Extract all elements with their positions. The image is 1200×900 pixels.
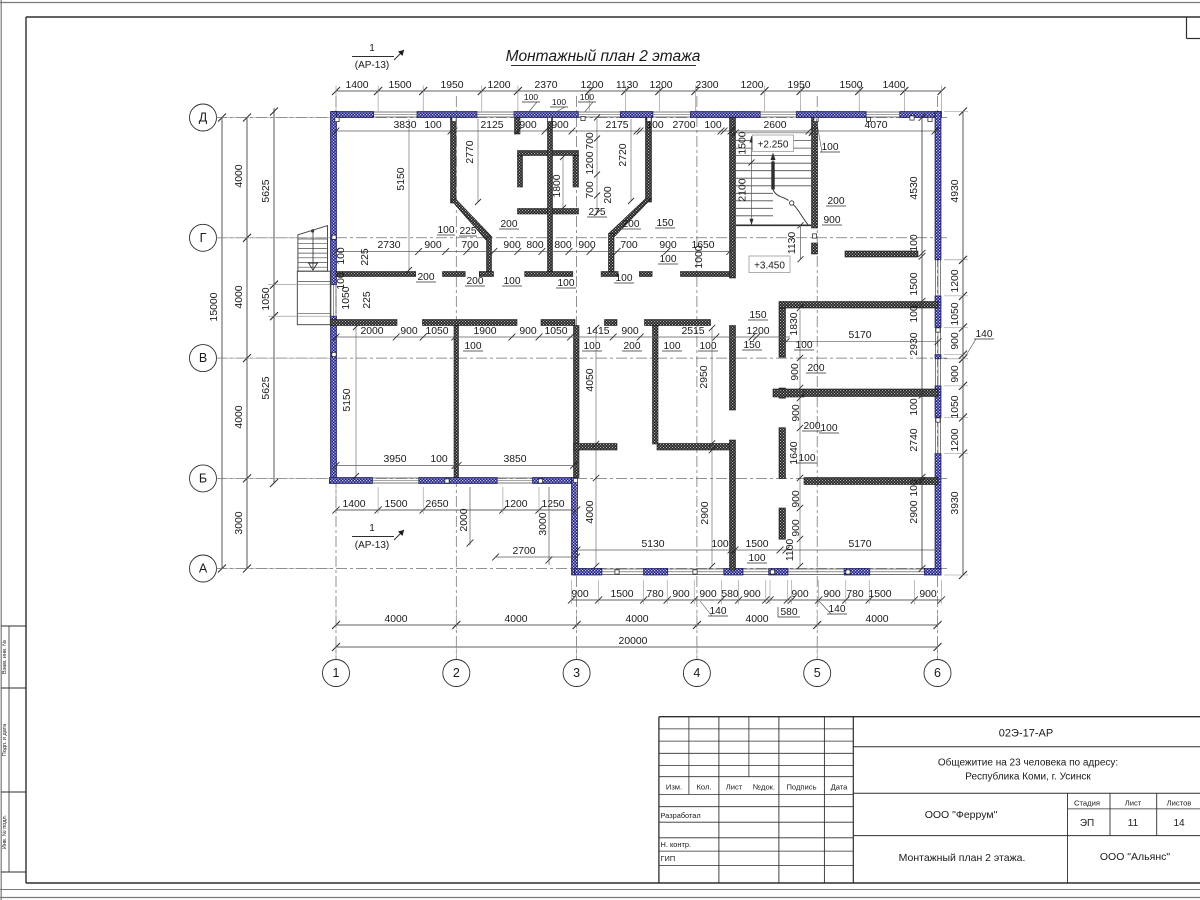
svg-text:150: 150	[657, 218, 674, 229]
svg-text:4000: 4000	[745, 614, 768, 625]
svg-text:140: 140	[710, 606, 727, 617]
svg-text:1500: 1500	[839, 80, 862, 91]
svg-text:1050: 1050	[425, 326, 448, 337]
svg-text:5625: 5625	[261, 179, 272, 202]
svg-text:2770: 2770	[465, 140, 476, 163]
svg-text:3: 3	[573, 666, 580, 680]
svg-text:1415: 1415	[586, 326, 609, 337]
svg-text:Подпись: Подпись	[786, 783, 816, 792]
svg-text:200: 200	[804, 421, 821, 432]
svg-text:Общежитие на 23 человека по ад: Общежитие на 23 человека по адресу:	[938, 757, 1118, 769]
svg-text:100: 100	[664, 341, 681, 352]
svg-text:Кол.: Кол.	[696, 783, 711, 792]
svg-text:900: 900	[519, 120, 537, 131]
svg-text:+3.450: +3.450	[754, 261, 785, 272]
svg-text:100: 100	[465, 341, 482, 352]
svg-text:1500: 1500	[868, 589, 891, 600]
svg-text:4000: 4000	[234, 164, 245, 187]
svg-text:780: 780	[846, 589, 864, 600]
svg-text:Дата: Дата	[831, 783, 849, 792]
svg-text:140: 140	[829, 604, 846, 615]
svg-text:580: 580	[721, 589, 739, 600]
svg-text:900: 900	[790, 363, 801, 381]
svg-text:Б: Б	[199, 471, 207, 485]
svg-text:800: 800	[554, 240, 572, 251]
svg-text:100: 100	[580, 92, 594, 102]
svg-text:1950: 1950	[440, 80, 463, 91]
svg-text:Изм.: Изм.	[666, 783, 682, 792]
svg-text:15000: 15000	[209, 292, 220, 321]
svg-text:4000: 4000	[585, 500, 596, 523]
svg-text:200: 200	[467, 276, 484, 287]
svg-text:1500: 1500	[738, 131, 749, 154]
svg-text:1200: 1200	[950, 269, 961, 292]
svg-text:100: 100	[336, 247, 347, 265]
svg-text:5170: 5170	[848, 539, 871, 550]
svg-text:2515: 2515	[681, 326, 704, 337]
svg-text:100: 100	[749, 553, 766, 564]
svg-text:100: 100	[660, 254, 677, 265]
svg-text:1200: 1200	[580, 80, 603, 91]
svg-text:1050: 1050	[950, 395, 961, 418]
svg-text:200: 200	[418, 272, 435, 283]
svg-text:1130: 1130	[787, 232, 798, 255]
svg-text:2000: 2000	[459, 508, 470, 531]
svg-text:1200: 1200	[504, 499, 527, 510]
svg-text:1400: 1400	[345, 80, 368, 91]
svg-text:1900: 1900	[473, 326, 496, 337]
svg-text:1200: 1200	[585, 151, 596, 174]
svg-text:1200: 1200	[950, 428, 961, 451]
svg-text:2700: 2700	[512, 546, 535, 557]
svg-text:100: 100	[504, 276, 521, 287]
svg-text:900: 900	[659, 240, 677, 251]
svg-text:200: 200	[624, 341, 641, 352]
svg-text:1100: 1100	[785, 539, 796, 562]
svg-text:700: 700	[461, 240, 479, 251]
svg-text:№док.: №док.	[753, 783, 775, 792]
svg-text:3000: 3000	[234, 511, 245, 534]
svg-text:225: 225	[362, 291, 373, 309]
svg-text:Взам. инв. №: Взам. инв. №	[2, 640, 8, 674]
svg-text:1830: 1830	[789, 312, 800, 335]
svg-text:100: 100	[616, 273, 633, 284]
svg-text:900: 900	[424, 240, 442, 251]
svg-text:100: 100	[796, 340, 813, 351]
svg-text:900: 900	[621, 326, 639, 337]
svg-text:2600: 2600	[763, 120, 786, 131]
svg-text:900: 900	[791, 404, 802, 422]
svg-text:900: 900	[791, 589, 809, 600]
svg-text:275: 275	[589, 207, 606, 218]
svg-text:14: 14	[1173, 818, 1185, 829]
svg-text:700: 700	[585, 132, 596, 150]
svg-text:4000: 4000	[234, 405, 245, 428]
svg-text:1800: 1800	[552, 174, 563, 197]
svg-text:Г: Г	[200, 231, 207, 245]
svg-text:3830: 3830	[393, 120, 416, 131]
svg-text:225: 225	[360, 248, 371, 266]
svg-text:900: 900	[699, 589, 717, 600]
svg-text:02Э-17-АР: 02Э-17-АР	[999, 728, 1053, 740]
svg-text:900: 900	[503, 240, 521, 251]
svg-text:100: 100	[430, 454, 448, 465]
svg-text:900: 900	[551, 120, 569, 131]
svg-text:100: 100	[909, 234, 920, 252]
svg-text:4000: 4000	[504, 614, 527, 625]
svg-text:1: 1	[369, 523, 375, 534]
svg-text:2700: 2700	[672, 120, 695, 131]
svg-text:В: В	[199, 351, 207, 365]
svg-text:2125: 2125	[480, 120, 503, 131]
svg-text:1500: 1500	[610, 589, 633, 600]
svg-text:5150: 5150	[342, 388, 353, 411]
svg-text:150: 150	[744, 340, 761, 351]
svg-text:1200: 1200	[746, 326, 769, 337]
svg-text:5: 5	[814, 666, 821, 680]
svg-text:4070: 4070	[864, 120, 887, 131]
svg-text:А: А	[199, 562, 208, 576]
svg-text:Стадия: Стадия	[1074, 799, 1100, 808]
svg-text:200: 200	[828, 196, 845, 207]
svg-text:700: 700	[585, 181, 596, 199]
svg-text:1200: 1200	[740, 80, 763, 91]
svg-text:900: 900	[672, 589, 690, 600]
svg-text:900: 900	[824, 215, 841, 226]
svg-text:1250: 1250	[541, 499, 564, 510]
svg-text:1050: 1050	[544, 326, 567, 337]
svg-text:1200: 1200	[649, 80, 672, 91]
svg-text:Республика Коми, г. Усинск: Республика Коми, г. Усинск	[965, 771, 1091, 783]
svg-text:2740: 2740	[909, 428, 920, 451]
svg-text:5625: 5625	[261, 376, 272, 399]
svg-text:900: 900	[950, 365, 961, 383]
svg-text:1400: 1400	[342, 499, 365, 510]
svg-text:Монтажный план 2 этажа: Монтажный план 2 этажа	[506, 48, 701, 65]
svg-text:100: 100	[711, 539, 729, 550]
svg-text:2: 2	[453, 666, 460, 680]
svg-text:(АР-13): (АР-13)	[355, 60, 389, 71]
svg-text:1650: 1650	[691, 240, 714, 251]
svg-text:1200: 1200	[487, 80, 510, 91]
svg-text:2930: 2930	[909, 332, 920, 355]
svg-text:2000: 2000	[360, 326, 383, 337]
svg-text:100: 100	[552, 97, 566, 107]
svg-text:140: 140	[976, 329, 993, 340]
svg-text:11: 11	[1128, 818, 1139, 829]
svg-text:200: 200	[808, 363, 825, 374]
svg-text:100: 100	[438, 225, 455, 236]
svg-text:900: 900	[823, 589, 841, 600]
svg-text:Инв. № подл.: Инв. № подл.	[2, 814, 8, 849]
svg-text:1500: 1500	[384, 499, 407, 510]
svg-text:6: 6	[934, 666, 941, 680]
svg-text:5130: 5130	[641, 539, 664, 550]
svg-text:100: 100	[799, 453, 816, 464]
svg-text:100: 100	[584, 341, 601, 352]
svg-text:100: 100	[821, 423, 838, 434]
svg-text:5170: 5170	[848, 330, 871, 341]
svg-text:4050: 4050	[585, 368, 596, 391]
svg-text:1400: 1400	[882, 80, 905, 91]
svg-text:1500: 1500	[388, 80, 411, 91]
svg-text:900: 900	[400, 326, 418, 337]
svg-text:2650: 2650	[425, 499, 448, 510]
svg-text:900: 900	[791, 519, 802, 537]
svg-text:1950: 1950	[787, 80, 810, 91]
svg-text:Н. контр.: Н. контр.	[661, 840, 692, 849]
svg-text:2900: 2900	[909, 500, 920, 523]
svg-text:2370: 2370	[534, 80, 557, 91]
svg-text:900: 900	[571, 589, 589, 600]
svg-text:4000: 4000	[384, 614, 407, 625]
svg-text:2720: 2720	[618, 143, 629, 166]
svg-text:100: 100	[336, 272, 347, 290]
svg-text:2300: 2300	[695, 80, 718, 91]
svg-text:1050: 1050	[950, 302, 961, 325]
svg-text:Листов: Листов	[1167, 799, 1192, 808]
svg-text:100: 100	[700, 341, 717, 352]
svg-text:+2.250: +2.250	[758, 140, 789, 151]
svg-text:ГИП: ГИП	[661, 854, 676, 863]
svg-text:150: 150	[750, 310, 767, 321]
svg-text:2950: 2950	[699, 365, 710, 388]
svg-text:4000: 4000	[865, 614, 888, 625]
svg-text:20000: 20000	[619, 636, 648, 647]
svg-text:100: 100	[822, 142, 839, 153]
svg-text:4000: 4000	[234, 285, 245, 308]
svg-text:ООО "Альянс": ООО "Альянс"	[1100, 851, 1170, 863]
svg-text:200: 200	[603, 186, 614, 204]
svg-text:ООО "Феррум": ООО "Феррум"	[925, 809, 998, 821]
svg-text:200: 200	[623, 219, 640, 230]
svg-text:780: 780	[646, 589, 664, 600]
svg-text:2100: 2100	[738, 178, 749, 201]
svg-text:1050: 1050	[261, 287, 272, 310]
svg-text:900: 900	[919, 589, 937, 600]
svg-text:3930: 3930	[950, 491, 961, 514]
svg-text:100: 100	[704, 120, 722, 131]
svg-text:3950: 3950	[383, 454, 406, 465]
svg-text:900: 900	[578, 240, 596, 251]
svg-text:(АР-13): (АР-13)	[355, 540, 389, 551]
svg-text:Подп. и дата: Подп. и дата	[2, 723, 8, 756]
svg-text:4: 4	[693, 666, 700, 680]
svg-text:1: 1	[333, 666, 340, 680]
svg-text:Монтажный план 2 этажа.: Монтажный план 2 этажа.	[899, 852, 1026, 864]
svg-text:ЭП: ЭП	[1080, 818, 1094, 829]
svg-text:5150: 5150	[396, 167, 407, 190]
svg-text:100: 100	[558, 278, 575, 289]
svg-text:2175: 2175	[605, 120, 628, 131]
svg-text:900: 900	[791, 490, 802, 508]
svg-text:800: 800	[526, 240, 544, 251]
svg-text:1500: 1500	[909, 272, 920, 295]
svg-text:900: 900	[743, 589, 761, 600]
svg-text:3850: 3850	[503, 454, 526, 465]
svg-text:2730: 2730	[377, 240, 400, 251]
svg-text:900: 900	[950, 332, 961, 350]
svg-text:225: 225	[460, 226, 477, 237]
svg-text:100: 100	[909, 305, 920, 323]
svg-text:4000: 4000	[625, 614, 648, 625]
svg-text:2900: 2900	[700, 501, 711, 524]
svg-text:700: 700	[620, 240, 638, 251]
svg-text:900: 900	[519, 326, 537, 337]
svg-text:4530: 4530	[909, 176, 920, 199]
svg-text:Разработал: Разработал	[661, 811, 701, 820]
svg-text:Лист: Лист	[1125, 799, 1142, 808]
svg-text:1500: 1500	[745, 539, 768, 550]
svg-text:3000: 3000	[538, 512, 549, 535]
svg-text:1: 1	[369, 43, 375, 54]
svg-text:100: 100	[424, 120, 442, 131]
svg-text:4930: 4930	[950, 179, 961, 202]
svg-text:200: 200	[501, 219, 518, 230]
svg-text:Д: Д	[199, 111, 208, 125]
svg-text:580: 580	[781, 607, 798, 618]
svg-text:Лист: Лист	[726, 783, 743, 792]
svg-text:100: 100	[524, 92, 538, 102]
svg-text:100: 100	[909, 479, 920, 497]
svg-text:1130: 1130	[616, 80, 639, 91]
svg-text:100: 100	[646, 120, 664, 131]
svg-text:100: 100	[909, 398, 920, 416]
